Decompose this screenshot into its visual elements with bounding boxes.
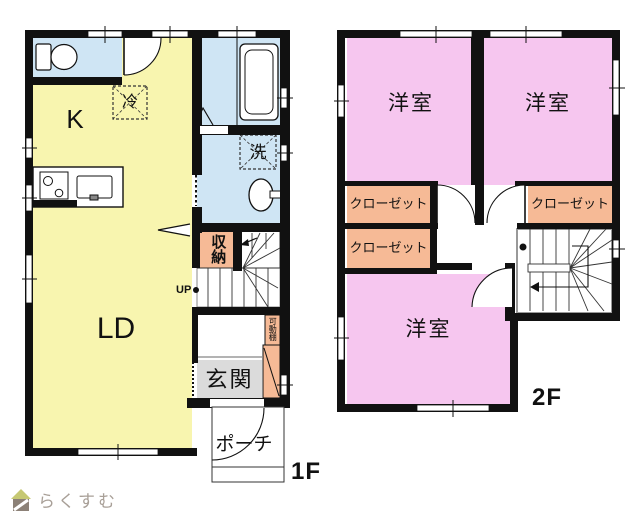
floor-plan-page: K LD 冷 洗 収納 UP 可動棚 玄関 ポーチ 1F 洋室 洋室 洋室 クロ… [0, 0, 640, 519]
floor1-tag: 1F [291, 458, 321, 486]
counter-halfwall [33, 200, 77, 207]
bedroom1-label: 洋室 [347, 92, 475, 116]
site-logo: らくすむ [10, 487, 118, 512]
bedroom3-label: 洋室 [347, 318, 510, 342]
house-icon [10, 488, 32, 512]
bedroom2-label: 洋室 [484, 92, 612, 116]
stair-start-dot-1f [193, 287, 199, 293]
floor2-tag: 2F [532, 384, 562, 412]
refrigerator-label: 冷 [113, 94, 147, 112]
toilet-tank-icon [36, 44, 51, 70]
toilet-bowl-icon [51, 45, 77, 70]
floor-plan-graphics [0, 0, 640, 519]
kitchen-label: K [45, 105, 105, 135]
closet2-label: クローゼット [528, 197, 612, 212]
washing-machine-label: 洗 [238, 143, 278, 163]
sink-tap-icon [90, 195, 98, 200]
porch-label: ポーチ [208, 434, 280, 456]
stair-landing-bar [528, 264, 570, 272]
closet3-label: クローゼット [347, 241, 430, 256]
washbasin-icon [249, 179, 273, 211]
stairs-up-label: UP [176, 284, 191, 297]
site-logo-text: らくすむ [38, 487, 118, 512]
bathtub-icon [240, 44, 278, 120]
entrance-label: 玄関 [197, 367, 262, 392]
movable-shelf-label: 可動棚 [268, 317, 277, 341]
stair-start-dot-2f [520, 244, 527, 251]
closet1-label: クローゼット [347, 197, 430, 212]
stairs-2f [517, 229, 612, 313]
living-dining-label: LD [76, 312, 156, 347]
storage-label: 収納 [209, 234, 226, 264]
